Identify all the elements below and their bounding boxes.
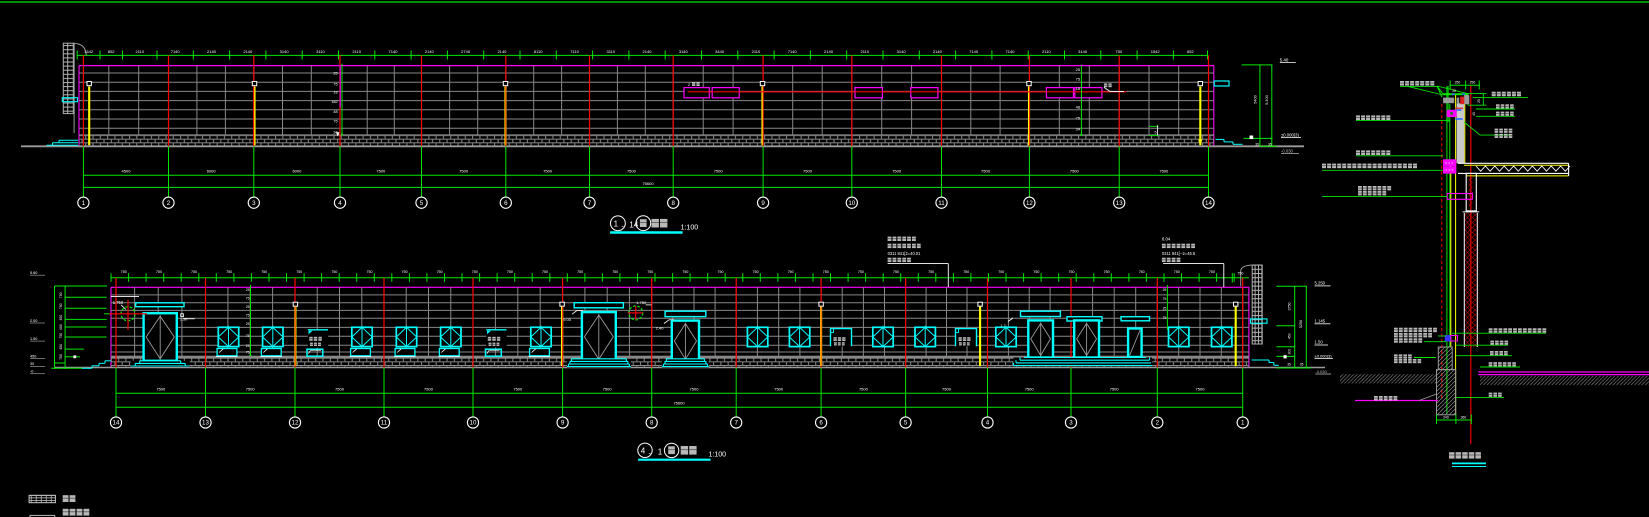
svg-text:7140: 7140 (788, 49, 798, 54)
svg-text:75: 75 (246, 297, 250, 301)
svg-text:250: 250 (1470, 81, 1476, 85)
svg-text:3140: 3140 (679, 49, 689, 54)
svg-text:8: 8 (671, 200, 675, 207)
svg-text:7500: 7500 (774, 387, 784, 392)
svg-text:3140: 3140 (1078, 49, 1088, 54)
svg-text:-0.030: -0.030 (1315, 369, 1327, 374)
svg-text:2740: 2740 (461, 49, 471, 54)
svg-text:75: 75 (1076, 77, 1080, 82)
svg-text:11: 11 (381, 420, 388, 427)
svg-text:7500: 7500 (981, 168, 991, 173)
svg-text:750: 750 (121, 270, 127, 274)
svg-text:75: 75 (246, 314, 250, 318)
svg-text:750: 750 (1139, 270, 1145, 274)
svg-text:8: 8 (650, 420, 654, 427)
svg-text:9: 9 (561, 420, 565, 427)
svg-text:750: 750 (1069, 270, 1075, 274)
svg-text:750: 750 (1237, 271, 1243, 275)
svg-text:750: 750 (858, 270, 864, 274)
svg-text:10: 10 (848, 200, 855, 207)
svg-text:2: 2 (688, 83, 690, 87)
svg-text:6: 6 (504, 200, 508, 207)
svg-text:750: 750 (1209, 270, 1215, 274)
svg-text:3140: 3140 (897, 49, 907, 54)
svg-text:2140: 2140 (643, 49, 653, 54)
svg-text:2140: 2140 (207, 49, 217, 54)
svg-text:250: 250 (1455, 81, 1461, 85)
svg-text:7500: 7500 (543, 168, 553, 173)
svg-text:7500: 7500 (714, 168, 724, 173)
svg-text:13: 13 (202, 420, 209, 427)
svg-text:2140: 2140 (243, 49, 253, 54)
svg-text:75: 75 (333, 82, 337, 87)
svg-text:5.40: 5.40 (1280, 57, 1289, 62)
svg-text:7140: 7140 (1006, 49, 1016, 54)
svg-text:7500: 7500 (376, 168, 386, 173)
svg-text:7500: 7500 (459, 168, 469, 173)
svg-text:7500: 7500 (1025, 387, 1035, 392)
svg-text:6.04: 6.04 (1162, 237, 1171, 242)
svg-text:35: 35 (1287, 362, 1291, 366)
svg-text:1:100: 1:100 (709, 451, 727, 458)
svg-text:11: 11 (938, 200, 945, 207)
svg-text:25: 25 (1477, 99, 1481, 103)
svg-text:±0.000(3): ±0.000(3) (1281, 132, 1300, 137)
svg-text:6: 6 (819, 420, 823, 427)
svg-text:-0: -0 (30, 370, 33, 374)
svg-text:300: 300 (1288, 349, 1292, 355)
svg-text:750: 750 (367, 270, 373, 274)
svg-text:1542: 1542 (1151, 49, 1161, 54)
svg-text:1: 1 (82, 200, 86, 207)
svg-text:25: 25 (246, 322, 250, 326)
svg-text:750: 750 (402, 270, 408, 274)
svg-text:5.60: 5.60 (30, 271, 37, 275)
svg-text:7500: 7500 (859, 387, 869, 392)
svg-text:35: 35 (1268, 142, 1272, 146)
svg-text:750: 750 (718, 270, 724, 274)
svg-text:45: 45 (1472, 112, 1476, 116)
svg-text:14: 14 (1205, 200, 1212, 207)
svg-text:360: 360 (1461, 415, 1467, 419)
svg-text:750: 750 (472, 270, 478, 274)
svg-text:2.00: 2.00 (30, 319, 37, 323)
svg-text:750: 750 (963, 270, 969, 274)
svg-text:7500: 7500 (335, 387, 345, 392)
svg-text:2140: 2140 (425, 49, 435, 54)
svg-text:4: 4 (338, 200, 342, 207)
svg-text:5250: 5250 (1299, 320, 1303, 328)
svg-text:7500: 7500 (1159, 168, 1169, 173)
svg-text:240: 240 (1443, 415, 1449, 419)
svg-text:2110: 2110 (135, 49, 144, 54)
svg-text:1.750: 1.750 (113, 300, 124, 305)
svg-text:7500: 7500 (803, 168, 813, 173)
svg-text:750: 750 (1116, 49, 1123, 54)
svg-text:1: 1 (614, 220, 619, 229)
svg-text:6000: 6000 (207, 168, 217, 173)
svg-text:7500: 7500 (424, 387, 434, 392)
svg-text:750: 750 (191, 270, 197, 274)
svg-text:75: 75 (333, 119, 337, 124)
svg-text:2: 2 (1156, 420, 1160, 427)
svg-text:5.400: 5.400 (1265, 95, 1269, 105)
svg-text:48: 48 (1076, 105, 1080, 110)
svg-text:2.40: 2.40 (656, 326, 665, 331)
svg-text:12: 12 (1026, 200, 1033, 207)
svg-text:18: 18 (1076, 86, 1080, 91)
svg-text:9.00: 9.00 (563, 317, 572, 322)
svg-text:750: 750 (59, 303, 63, 309)
svg-text:25: 25 (333, 71, 337, 76)
svg-text:7500: 7500 (627, 168, 637, 173)
svg-text:35: 35 (1255, 142, 1259, 146)
svg-text:7500: 7500 (1070, 168, 1080, 173)
svg-text:750: 750 (788, 270, 794, 274)
svg-text:750: 750 (893, 270, 899, 274)
svg-text:450: 450 (59, 344, 63, 350)
svg-text:2110: 2110 (860, 49, 869, 54)
svg-text:750: 750 (1033, 270, 1039, 274)
svg-text:75600: 75600 (642, 181, 654, 186)
svg-text:7500: 7500 (513, 387, 523, 392)
svg-text:750: 750 (59, 333, 63, 339)
svg-text:1:100: 1:100 (681, 224, 699, 231)
svg-text:400: 400 (59, 324, 63, 330)
svg-text:1.145: 1.145 (1315, 319, 1326, 324)
svg-text:750: 750 (437, 270, 443, 274)
svg-text:750: 750 (928, 270, 934, 274)
svg-text:750: 750 (296, 270, 302, 274)
svg-text:1: 1 (1241, 420, 1245, 427)
svg-text:2110: 2110 (1042, 49, 1051, 54)
svg-text:7140: 7140 (171, 49, 181, 54)
svg-text:0311 841[2=40.01: 0311 841[2=40.01 (888, 251, 922, 256)
svg-text:852: 852 (108, 49, 115, 54)
svg-text:450: 450 (30, 354, 36, 358)
svg-text:750: 750 (542, 270, 548, 274)
svg-text:75: 75 (246, 334, 250, 338)
svg-text:7110: 7110 (570, 49, 579, 54)
svg-text:14: 14 (113, 420, 120, 427)
svg-text:2140: 2140 (824, 49, 834, 54)
svg-text:25: 25 (1163, 288, 1167, 292)
svg-text:750: 750 (682, 270, 688, 274)
svg-text:852: 852 (1187, 49, 1194, 54)
svg-text:2140: 2140 (497, 49, 507, 54)
svg-text:3110: 3110 (316, 49, 325, 54)
svg-text:5: 5 (1155, 130, 1157, 134)
svg-text:30: 30 (30, 362, 34, 366)
svg-text:750: 750 (1104, 270, 1110, 274)
svg-text:750: 750 (507, 270, 513, 274)
svg-text:2: 2 (167, 200, 171, 207)
svg-text:750: 750 (647, 270, 653, 274)
svg-text:±0.000(3): ±0.000(3) (1315, 353, 1333, 358)
svg-text:3: 3 (1069, 420, 1073, 427)
svg-text:3: 3 (252, 200, 256, 207)
svg-text:8110: 8110 (534, 49, 543, 54)
svg-text:25: 25 (1452, 89, 1456, 93)
svg-text:25: 25 (1076, 67, 1080, 72)
svg-text:2110: 2110 (352, 49, 361, 54)
svg-text:750: 750 (823, 270, 829, 274)
svg-text:7500: 7500 (690, 387, 700, 392)
svg-text:5: 5 (904, 420, 908, 427)
svg-text:75: 75 (1163, 316, 1167, 320)
svg-text:750: 750 (577, 270, 583, 274)
svg-text:6000: 6000 (292, 168, 302, 173)
svg-text:1.50: 1.50 (30, 337, 37, 341)
svg-text:3110: 3110 (606, 49, 615, 54)
svg-text:2110: 2110 (752, 49, 761, 54)
svg-text:75: 75 (1163, 297, 1167, 301)
svg-text:1.50: 1.50 (180, 318, 187, 322)
svg-text:750: 750 (1174, 270, 1180, 274)
svg-text:3750: 3750 (1288, 303, 1292, 311)
svg-text:1.7: 1.7 (1000, 324, 1005, 328)
svg-text:-0.030: -0.030 (1281, 148, 1294, 153)
svg-text:750: 750 (59, 354, 63, 360)
svg-text:1.750: 1.750 (636, 300, 647, 305)
svg-text:7140: 7140 (389, 49, 399, 54)
svg-text:13: 13 (1116, 200, 1123, 207)
svg-text:25: 25 (246, 344, 250, 348)
svg-text:1.50: 1.50 (1315, 340, 1324, 345)
svg-text:450: 450 (1288, 333, 1292, 339)
svg-text:7500: 7500 (892, 168, 902, 173)
svg-text:9: 9 (761, 200, 765, 207)
svg-text:3140: 3140 (280, 49, 290, 54)
svg-text:7500: 7500 (942, 387, 952, 392)
svg-text:750: 750 (156, 270, 162, 274)
svg-text:750: 750 (226, 270, 232, 274)
svg-text:35: 35 (1300, 362, 1304, 366)
svg-text:7500: 7500 (1110, 387, 1120, 392)
svg-text:7140: 7140 (969, 49, 979, 54)
svg-text:5: 5 (420, 200, 424, 207)
svg-text:12: 12 (292, 420, 299, 427)
svg-text:75600: 75600 (673, 401, 685, 406)
svg-text:7: 7 (588, 200, 592, 207)
svg-text:5400: 5400 (1253, 95, 1257, 103)
svg-text:750: 750 (261, 270, 267, 274)
svg-text:750: 750 (59, 292, 63, 298)
svg-text:25: 25 (246, 288, 250, 292)
svg-text:750: 750 (998, 270, 1004, 274)
svg-text:25: 25 (246, 305, 250, 309)
svg-text:18: 18 (333, 90, 337, 95)
svg-text:7500: 7500 (603, 387, 613, 392)
svg-text:750: 750 (331, 270, 337, 274)
svg-text:4: 4 (641, 447, 646, 456)
svg-text:10: 10 (470, 420, 477, 427)
svg-text:7500: 7500 (156, 387, 166, 392)
svg-text:0311 841[--2=46.5: 0311 841[--2=46.5 (1162, 251, 1196, 256)
svg-text:75: 75 (1076, 116, 1080, 121)
svg-text:3440: 3440 (715, 49, 725, 54)
svg-text:25: 25 (1163, 307, 1167, 311)
svg-text:750: 750 (612, 270, 618, 274)
svg-text:7500: 7500 (246, 387, 256, 392)
svg-text:2140: 2140 (933, 49, 943, 54)
svg-text:5.250: 5.250 (1315, 281, 1326, 286)
svg-text:182: 182 (331, 99, 338, 104)
svg-text:7500: 7500 (1196, 387, 1206, 392)
svg-text:450: 450 (59, 315, 63, 321)
svg-text:7: 7 (734, 420, 738, 427)
svg-text:750: 750 (753, 270, 759, 274)
svg-text:4: 4 (986, 420, 990, 427)
svg-text:48: 48 (333, 109, 337, 114)
svg-text:4500: 4500 (122, 168, 132, 173)
svg-text:75: 75 (246, 351, 250, 355)
svg-text:1: 1 (658, 447, 663, 456)
